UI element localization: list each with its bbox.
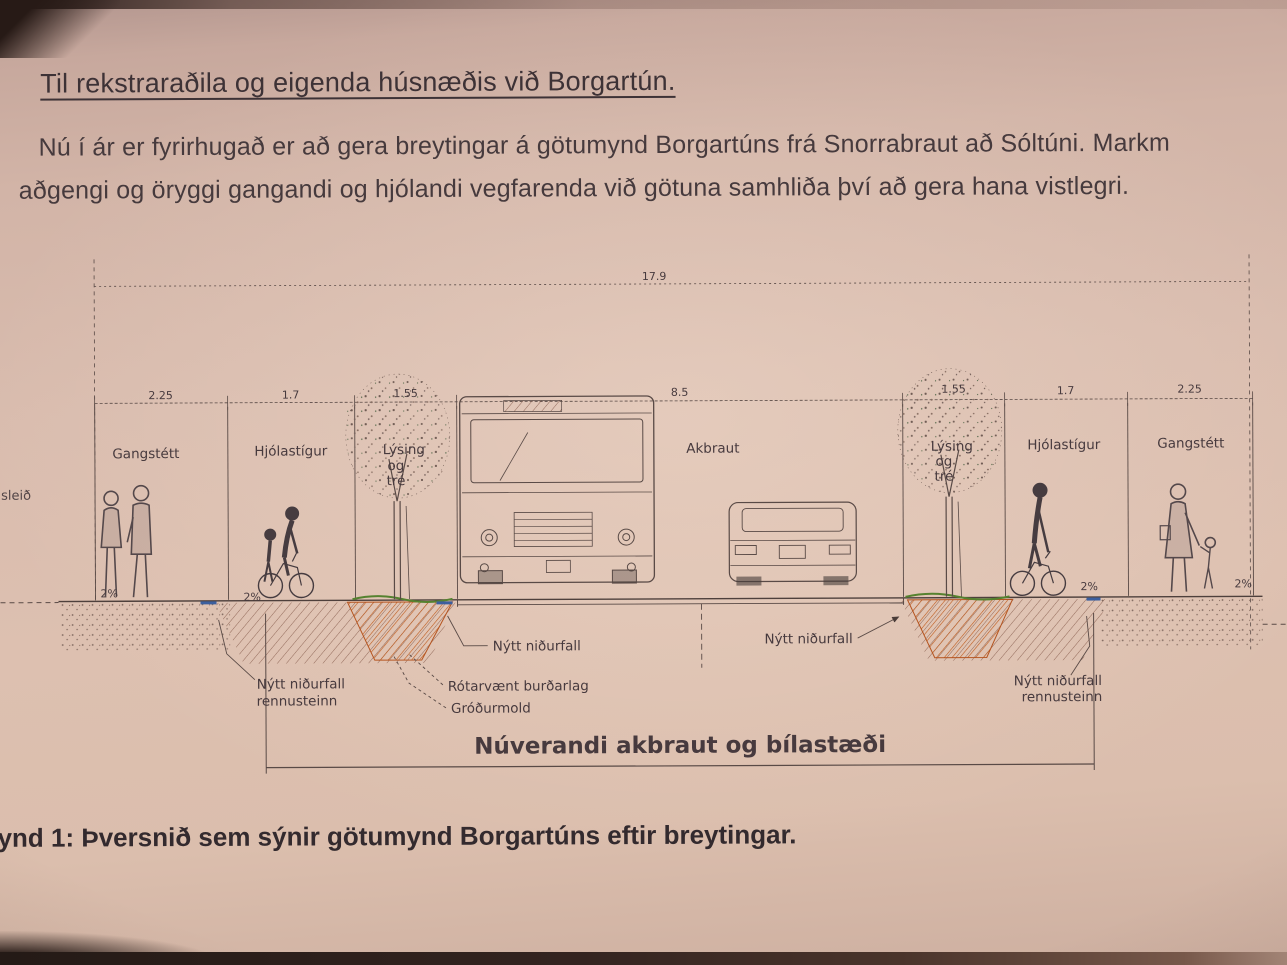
stipple-earth-right xyxy=(1101,598,1263,646)
dimension-gangstett-right: 2.25 xyxy=(1177,383,1202,396)
label-existing-road: Núverandi akbraut og bílastæði xyxy=(474,732,886,760)
slope-label-sidewalk-left: 2% xyxy=(100,587,118,600)
dimension-hjolastigur-right: 1.7 xyxy=(1057,384,1075,397)
zone-label-lysing-right-3: tré xyxy=(935,469,954,485)
zone-label-hjolastigur-left: Hjólastígur xyxy=(254,443,327,459)
cyclist-with-child-left xyxy=(258,507,313,598)
leader-new-drain-left xyxy=(448,616,488,646)
dimension-tree-left: 1.55 xyxy=(393,387,418,400)
car-drawing xyxy=(729,502,856,586)
zone-labels: Gangstétt Hjólastígur Lýsing og tré Akbr… xyxy=(112,435,1224,490)
label-kerb-drain-right-2: rennusteinn xyxy=(1022,689,1103,705)
dimension-labels: 17.9 2.25 1.7 1.55 8.5 1.55 1.7 2.25 xyxy=(148,268,1202,403)
pedestrian-couple-left xyxy=(101,486,151,598)
cross-section-svg: 17.9 2.25 1.7 1.55 8.5 1.55 1.7 2.25 Gan… xyxy=(0,237,1287,823)
zone-label-gangstett-right: Gangstétt xyxy=(1157,435,1224,451)
dimension-gangstett-left: 2.25 xyxy=(148,389,173,402)
document-page: Til rekstraraðila og eigenda húsnæðis vi… xyxy=(0,0,1287,965)
zone-label-akbraut: Akbraut xyxy=(686,441,739,457)
label-new-drain-right: Nýtt niðurfall xyxy=(764,631,852,647)
body-line-1: Nú í ár er fyrirhugað er að gera breytin… xyxy=(38,129,1170,163)
letter-title: Til rekstraraðila og eigenda húsnæðis vi… xyxy=(40,66,675,100)
label-topsoil: Gróðurmold xyxy=(451,700,531,716)
label-kerb-drain-left-2: rennusteinn xyxy=(257,693,338,709)
cyclist-right xyxy=(1010,483,1065,595)
zone-label-lysing-left-3: tré xyxy=(387,473,406,489)
dimension-akbraut: 8.5 xyxy=(671,386,689,399)
pedestrian-with-child-right xyxy=(1160,484,1215,592)
grass-line-left xyxy=(352,596,452,602)
cross-section-figure: 17.9 2.25 1.7 1.55 8.5 1.55 1.7 2.25 Gan… xyxy=(0,237,1287,823)
slope-label-bikepath-left: 2% xyxy=(243,591,261,604)
grass-line-right xyxy=(905,593,1009,599)
bus-drawing xyxy=(460,396,655,584)
zone-label-gangstett-left: Gangstétt xyxy=(112,446,179,462)
zone-label-lysing-right-2: og xyxy=(935,454,952,470)
zone-label-lysing-left-1: Lýsing xyxy=(383,442,425,458)
photo-edge-top xyxy=(0,0,1287,9)
label-root-base: Rótarvænt burðarlag xyxy=(448,678,589,695)
section-boundary-lines xyxy=(95,402,1254,600)
label-new-drain-left: Nýtt niðurfall xyxy=(493,638,581,654)
label-kerb-drain-left-1: Nýtt niðurfall xyxy=(257,676,345,692)
zone-label-lysing-left-2: og xyxy=(387,458,404,474)
dimension-hjolastigur-left: 1.7 xyxy=(282,389,300,402)
zone-label-hjolastigur-right: Hjólastígur xyxy=(1027,437,1100,453)
body-line-2: aðgengi og öryggi gangandi og hjólandi v… xyxy=(19,172,1130,206)
slope-label-bikepath-right: 2% xyxy=(1080,580,1098,593)
photographed-document: Til rekstraraðila og eigenda húsnæðis vi… xyxy=(0,0,1287,965)
label-kerb-drain-right-1: Nýtt niðurfall xyxy=(1014,673,1102,689)
photo-edge-bottom xyxy=(0,952,1287,965)
slope-label-sidewalk-right: 2% xyxy=(1234,577,1252,590)
figure-caption: ynd 1: Þversnið sem sýnir götumynd Borga… xyxy=(0,819,797,853)
stipple-earth-left xyxy=(61,603,231,651)
photo-corner-shadow-top-left xyxy=(0,0,120,58)
earth-texture xyxy=(61,598,1263,664)
zone-label-lysing-right-1: Lýsing xyxy=(931,439,973,455)
dimension-tree-right: 1.55 xyxy=(941,383,966,396)
dimension-total: 17.9 xyxy=(642,270,667,283)
leader-new-drain-right xyxy=(858,617,899,638)
